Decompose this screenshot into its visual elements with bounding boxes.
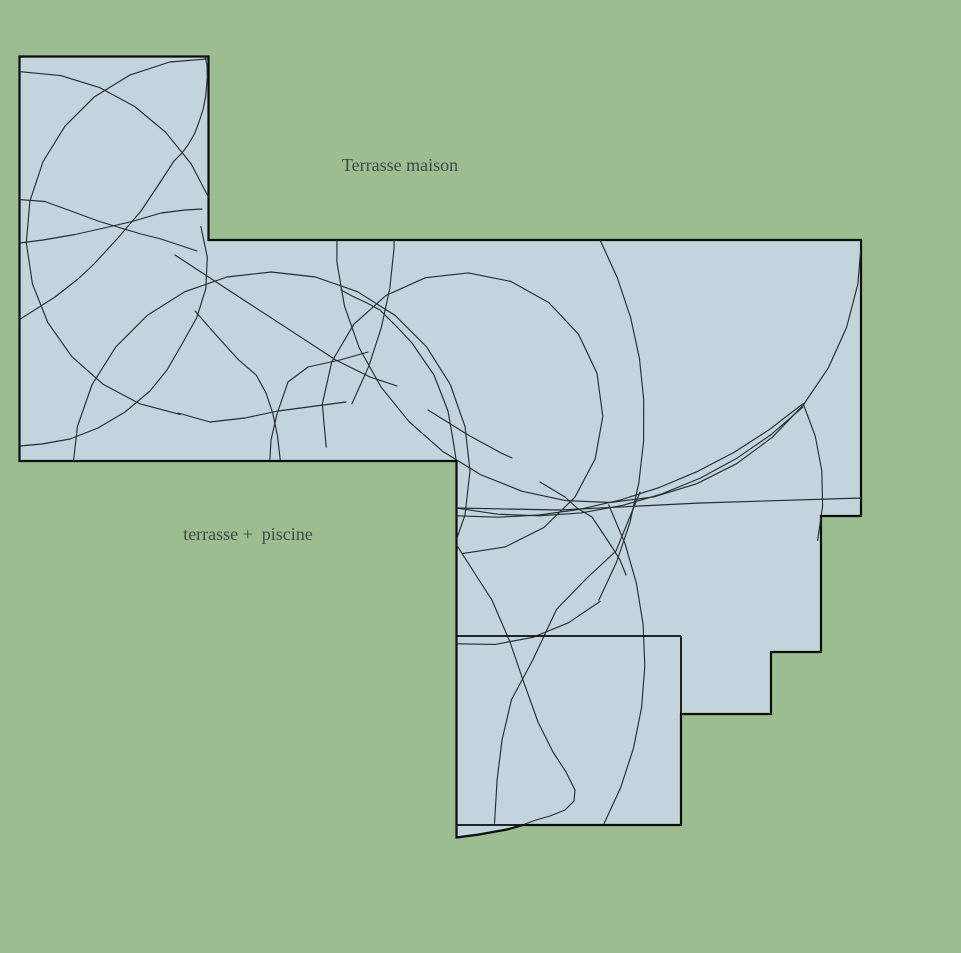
svg-text:Terrasse maison: Terrasse maison (342, 155, 458, 175)
svg-text:terrasse + piscine: terrasse + piscine (183, 524, 313, 544)
